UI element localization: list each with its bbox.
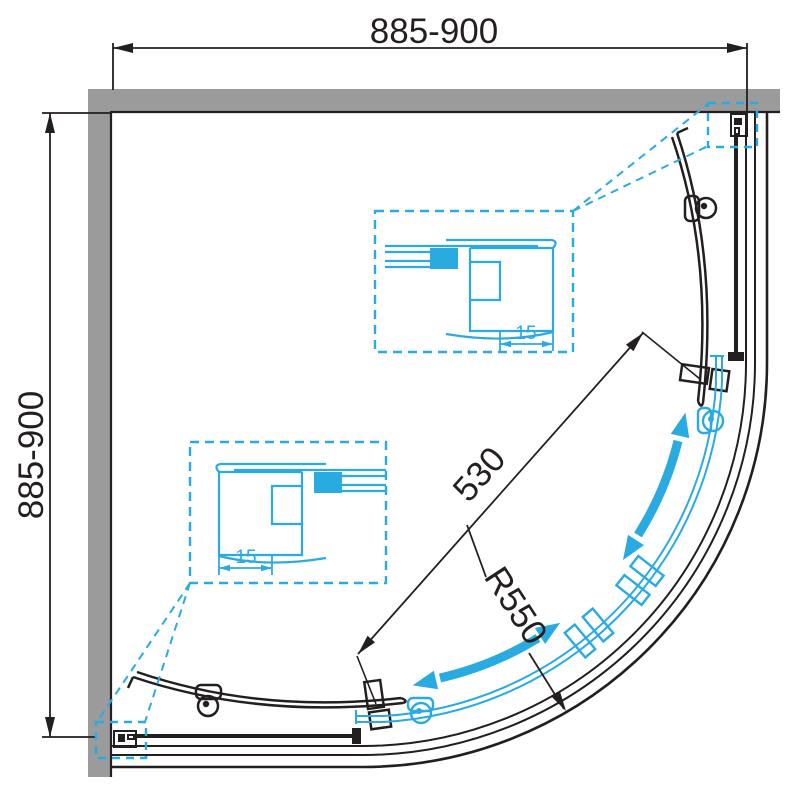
dimension-label-r550: R550: [477, 560, 555, 651]
door-blade-bottom: [128, 672, 406, 716]
dimension-label-15-top: 15: [515, 323, 536, 344]
dimension-label-15-bottom: 15: [235, 547, 256, 568]
dimension-label-530: 530: [445, 440, 513, 510]
slide-arrow-upper: [615, 410, 695, 565]
dimension-label-top: 885-900: [370, 12, 498, 51]
wall-top: [88, 89, 780, 112]
dim-arrow-icon: [45, 717, 55, 737]
arrowhead-icon: [615, 535, 644, 565]
dimension-radius-r550: R550: [467, 525, 570, 714]
profile-section-bottom: 15: [216, 464, 386, 575]
dim-arrow-icon: [261, 565, 272, 571]
arrowhead-icon: [671, 410, 695, 438]
panel-end-profile-bottom: [352, 728, 361, 744]
wall-left: [88, 89, 111, 777]
detail-callout-bottom: 15: [96, 442, 386, 758]
door-knob-bottom: [408, 698, 433, 723]
panel-end-profile-right: [728, 352, 744, 361]
dim-arrow-icon: [542, 341, 553, 347]
fixed-panel-right: [728, 114, 747, 361]
quadrant-shower-enclosure-diagram: 885-900 885-900 530 R550: [0, 0, 800, 798]
sliding-door-track: [356, 356, 724, 724]
diagram-canvas: 885-900 885-900 530 R550: [0, 0, 800, 798]
dim-arrow-icon: [727, 43, 747, 53]
dimension-label-left: 885-900: [12, 391, 51, 519]
fixed-panel-bottom: [114, 728, 361, 747]
dim-arrow-icon: [500, 341, 511, 347]
dim-arrow-icon: [113, 43, 133, 53]
dim-arrow-icon: [219, 565, 230, 571]
door-knob-right: [698, 408, 723, 433]
arrowhead-icon: [410, 671, 438, 695]
profile-section-top: 15: [385, 240, 556, 351]
dim-arrow-icon: [45, 113, 55, 133]
door-blade-right: [672, 128, 716, 406]
